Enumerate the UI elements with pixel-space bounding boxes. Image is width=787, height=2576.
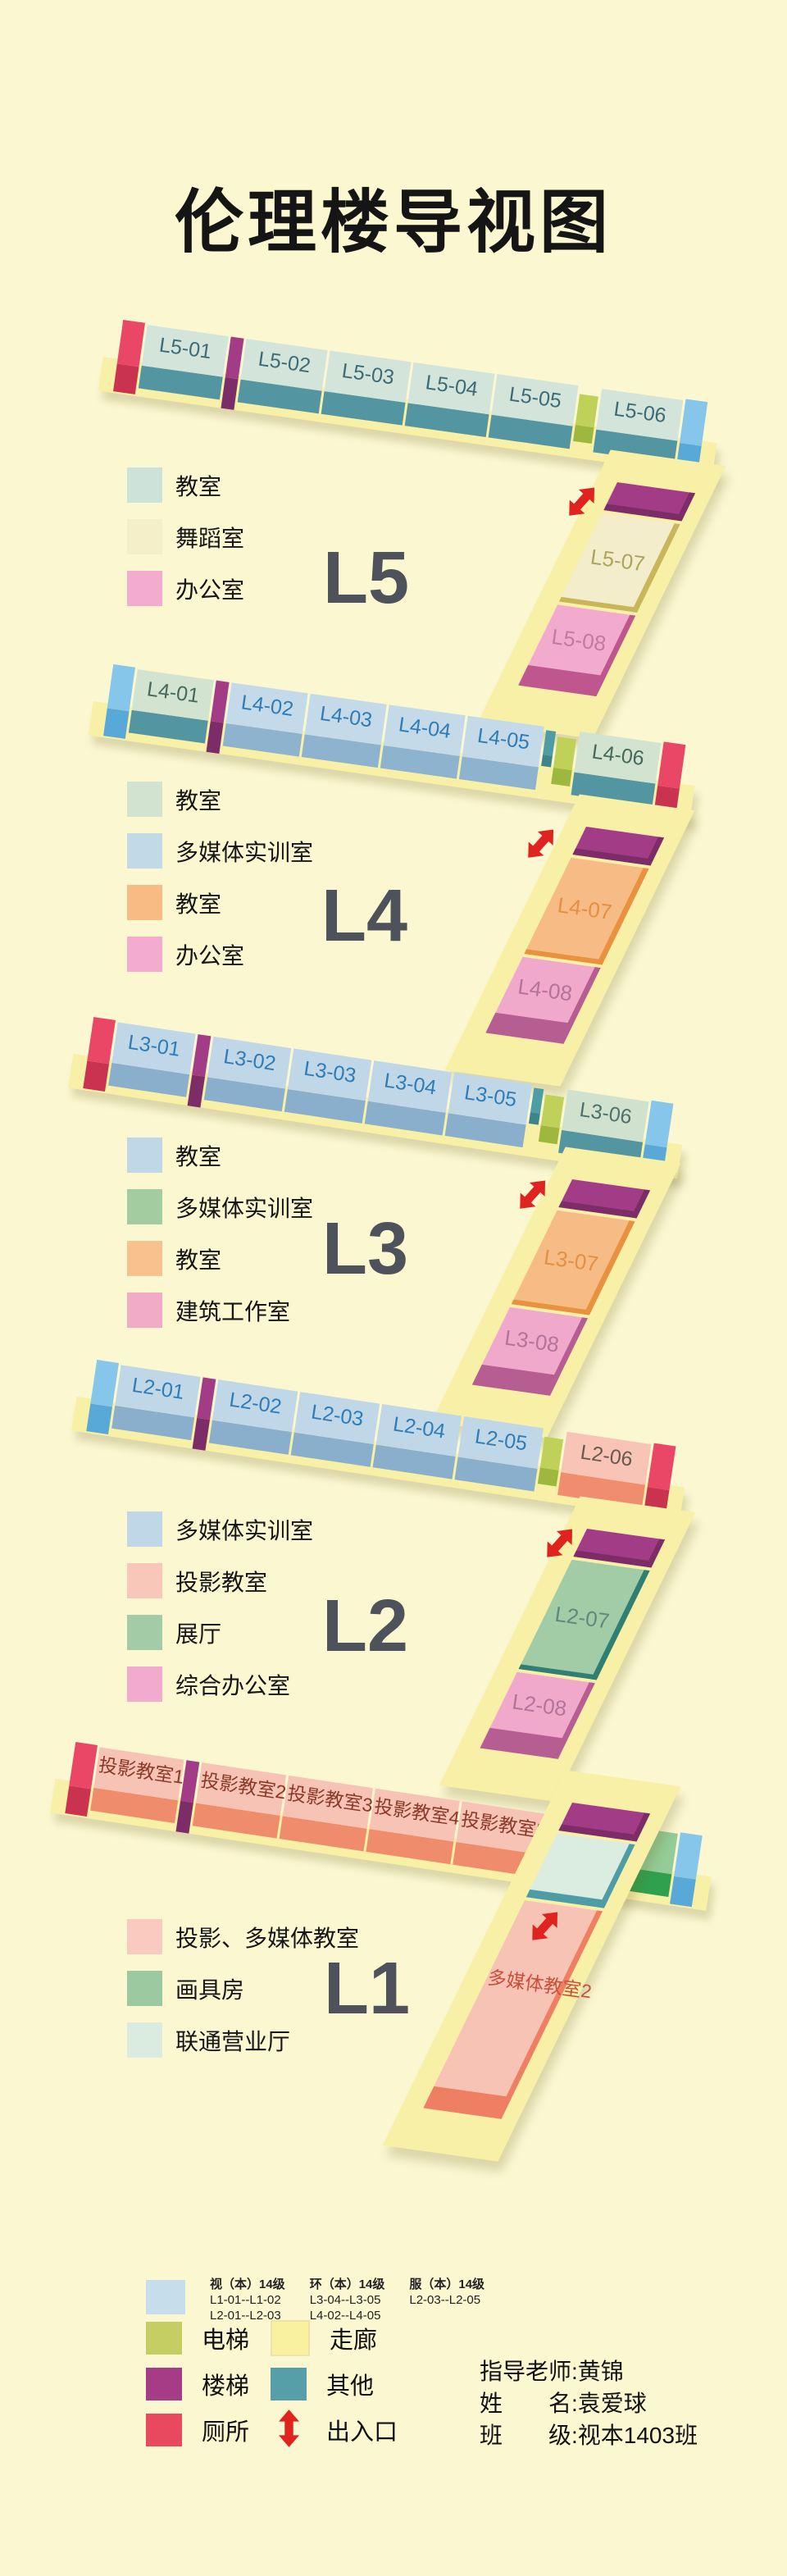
room-label: L3-04 <box>370 1067 451 1102</box>
room-投影教室4: 投影教室4 <box>366 1789 459 1865</box>
entrance-icon <box>271 2410 307 2451</box>
room-L5-02: L5-02 <box>238 339 328 413</box>
credit-teacher: 指导老师:黄锦 <box>480 2355 698 2387</box>
room-label: L2-06 <box>562 1438 650 1475</box>
room-L4-02: L4-02 <box>223 682 308 756</box>
floor-label-L4: L4 <box>321 879 407 953</box>
legend-label: 投影、多媒体教室 <box>175 1921 359 1954</box>
room-label: L3-08 <box>494 1324 570 1359</box>
room-label: L2-04 <box>378 1411 461 1446</box>
room-label: L3-03 <box>289 1055 371 1090</box>
credit-name: 姓 名:袁爱球 <box>480 2387 698 2419</box>
room-label: L5-08 <box>541 622 616 658</box>
floor-L3-branch: L3-07L3-08 <box>471 1179 650 1399</box>
legend-item: 建筑工作室 <box>127 1293 313 1328</box>
legend-swatch <box>127 885 162 920</box>
legend-item: 教室 <box>127 885 313 920</box>
floor-L5-legend: 教室舞蹈室办公室 <box>127 467 244 622</box>
room-投影教室2: 投影教室2 <box>193 1762 286 1839</box>
class-legend-swatch <box>146 2280 185 2314</box>
legend-label: 画具房 <box>175 1972 244 2005</box>
class-group: 环（本）14级L3-04--L3-05L4-02--L4-05 <box>310 2277 385 2323</box>
room-label: L2-01 <box>116 1371 199 1407</box>
legend-swatch <box>127 467 162 503</box>
footer-legend-item: 走廊 <box>271 2320 377 2356</box>
room-label: L3-01 <box>113 1028 194 1064</box>
legend-swatch <box>127 2022 162 2058</box>
room-label: L3-02 <box>209 1043 290 1078</box>
legend-item: 多媒体实训室 <box>127 1189 313 1224</box>
floor-label-L5: L5 <box>323 541 409 615</box>
legend-swatch <box>127 1615 162 1650</box>
legend-swatch <box>127 1971 162 2006</box>
floor-label-L3: L3 <box>322 1212 408 1286</box>
footer-legend-swatch <box>271 2320 310 2356</box>
room-label: L5-04 <box>409 369 494 404</box>
floor-label-L2: L2 <box>322 1589 408 1663</box>
room-L2-04: L2-04 <box>373 1404 462 1479</box>
legend-label: 教室 <box>175 1242 221 1275</box>
room-L3-03: L3-03 <box>284 1049 371 1124</box>
floor-L2-wing: L2-01L2-02L2-03L2-04L2-05L2-06 <box>86 1361 676 1520</box>
room-label: L4-06 <box>575 738 660 773</box>
legend-item: 教室 <box>127 467 244 503</box>
room-L2-02: L2-02 <box>209 1379 298 1455</box>
legend-item: 舞蹈室 <box>127 519 244 554</box>
legend-item: 展厅 <box>127 1615 313 1650</box>
legend-swatch <box>127 1189 162 1224</box>
legend-label: 舞蹈室 <box>175 521 244 554</box>
floor-L3-legend: 教室多媒体实训室教室建筑工作室 <box>127 1138 313 1344</box>
legend-label: 教室 <box>175 1139 221 1172</box>
legend-label: 建筑工作室 <box>175 1294 290 1327</box>
room-label: L3-07 <box>534 1242 609 1278</box>
room-L3-01: L3-01 <box>108 1022 195 1097</box>
class-group-header: 视（本）14级 <box>210 2277 285 2292</box>
class-group-line: L1-01--L1-02 <box>210 2292 285 2308</box>
class-group-header: 服（本）14级 <box>409 2277 484 2292</box>
room-L5-03: L5-03 <box>321 350 412 425</box>
room-label: L2-02 <box>214 1386 297 1421</box>
legend-item: 联通营业厅 <box>127 2022 359 2058</box>
room-label: 投影教室2 <box>198 1764 288 1804</box>
room-label: L4-02 <box>227 689 307 723</box>
legend-label: 办公室 <box>175 938 244 971</box>
room-label: L5-01 <box>143 331 228 367</box>
room-label: L2-05 <box>460 1423 543 1458</box>
footer-legend-swatch <box>146 2322 182 2355</box>
room-label: L4-05 <box>464 723 544 757</box>
room-投影教室1: 投影教室1 <box>90 1747 184 1823</box>
legend-label: 办公室 <box>175 572 244 605</box>
room-label: L5-05 <box>493 381 577 416</box>
room-L5-06: L5-06 <box>593 389 683 463</box>
room-L2-01: L2-01 <box>111 1365 200 1440</box>
floor-L2-legend: 多媒体实训室投影教室展厅综合办公室 <box>127 1511 313 1718</box>
footer-legend-label: 出入口 <box>326 2413 398 2447</box>
room-label: L4-08 <box>507 973 583 1008</box>
room-L4-05: L4-05 <box>459 716 544 790</box>
legend-label: 多媒体实训室 <box>175 1191 313 1224</box>
legend-label: 联通营业厅 <box>175 2024 290 2057</box>
legend-item: 教室 <box>127 1138 313 1173</box>
legend-item: 多媒体实训室 <box>127 1511 313 1547</box>
legend-item: 办公室 <box>127 571 244 606</box>
room-L2-05: L2-05 <box>454 1416 543 1492</box>
credits: 指导老师:黄锦 姓 名:袁爱球 班 级:视本1403班 <box>480 2355 698 2451</box>
legend-swatch <box>127 571 162 606</box>
room-label: L4-01 <box>134 676 213 710</box>
footer-legend-item: 其他 <box>271 2366 374 2402</box>
room-L2-03: L2-03 <box>291 1392 380 1467</box>
legend-swatch <box>127 519 162 554</box>
legend-swatch <box>127 1919 162 1954</box>
legend-item: 办公室 <box>127 937 313 972</box>
room-L3-02: L3-02 <box>204 1037 291 1111</box>
footer-legend-label: 其他 <box>326 2367 374 2401</box>
room-投影教室3: 投影教室3 <box>280 1776 373 1852</box>
footer-legend-item: 电梯 <box>146 2320 249 2356</box>
legend-item: 多媒体实训室 <box>127 833 313 869</box>
room-label: L5-02 <box>242 345 326 381</box>
room-L3-05: L3-05 <box>445 1073 532 1147</box>
room-label: L4-04 <box>385 711 465 745</box>
footer-legend-swatch <box>146 2368 182 2400</box>
legend-item: 教室 <box>127 782 313 817</box>
room-label: 投影教室1 <box>95 1748 185 1789</box>
legend-item: 综合办公室 <box>127 1666 313 1702</box>
footer-legend-item: 出入口 <box>271 2412 398 2448</box>
legend-label: 多媒体实训室 <box>175 835 313 868</box>
room-L5-01: L5-01 <box>139 325 229 399</box>
footer-legend-swatch <box>271 2368 307 2400</box>
class-group: 视（本）14级L1-01--L1-02L2-01--L2-03 <box>210 2277 285 2323</box>
legend-swatch <box>127 782 162 817</box>
legend-swatch <box>127 937 162 972</box>
room-label: L2-07 <box>544 1600 620 1635</box>
credit-class: 班 级:视本1403班 <box>480 2419 698 2451</box>
legend-swatch <box>127 1138 162 1173</box>
footer-legend-item: 楼梯 <box>146 2366 249 2402</box>
class-group-line: L2-03--L2-05 <box>409 2292 484 2308</box>
legend-item: 教室 <box>127 1241 313 1276</box>
room-label: L5-06 <box>598 395 682 431</box>
legend-swatch <box>127 1241 162 1276</box>
footer-legend-label: 走廊 <box>330 2321 377 2355</box>
room-L4-03: L4-03 <box>302 694 387 768</box>
page-title: 伦理楼导视图 <box>0 167 787 267</box>
legend-label: 教室 <box>175 469 221 502</box>
room-L4-04: L4-04 <box>380 704 466 778</box>
legend-label: 教室 <box>175 887 221 919</box>
floor-L4-branch: L4-07L4-08 <box>484 827 665 1047</box>
legend-swatch <box>127 1511 162 1547</box>
floor-L1-legend: 投影、多媒体教室画具房联通营业厅 <box>127 1919 359 2074</box>
room-label: L5-07 <box>580 543 655 578</box>
room-label: L4-03 <box>306 700 385 735</box>
room-label: L3-06 <box>563 1096 648 1131</box>
room-label: 多媒体教室2 <box>486 1962 562 1999</box>
room-L3-04: L3-04 <box>365 1060 452 1135</box>
room-L5-05: L5-05 <box>489 374 579 449</box>
floor-L4-legend: 教室多媒体实训室教室办公室 <box>127 782 313 988</box>
room-L5-04: L5-04 <box>405 362 495 437</box>
class-group-line: L3-04--L3-05 <box>310 2292 385 2308</box>
room-label: L2-08 <box>502 1688 577 1723</box>
footer-legend-label: 电梯 <box>202 2321 249 2355</box>
legend-swatch <box>127 1293 162 1328</box>
legend-label: 教室 <box>175 783 221 816</box>
floor-L2-branch: L2-07L2-08 <box>479 1529 665 1762</box>
floor-L5-branch: L5-07L5-08 <box>516 482 695 700</box>
legend-label: 投影教室 <box>175 1565 267 1598</box>
room-label: L5-03 <box>325 357 410 392</box>
room-label: L4-07 <box>547 891 622 927</box>
class-legend: 视（本）14级L1-01--L1-02L2-01--L2-03环（本）14级L3… <box>146 2277 484 2323</box>
room-L4-01: L4-01 <box>129 669 214 743</box>
legend-swatch <box>127 1666 162 1702</box>
room-label: L2-03 <box>296 1398 379 1434</box>
footer-legend-label: 楼梯 <box>202 2367 249 2401</box>
legend-swatch <box>127 833 162 869</box>
room-label: 投影教室3 <box>284 1777 375 1817</box>
legend-item: 投影、多媒体教室 <box>127 1919 359 1954</box>
room-L2-06: L2-06 <box>557 1432 651 1508</box>
footer-legend-label: 厕所 <box>202 2413 249 2447</box>
legend-item: 画具房 <box>127 1971 359 2006</box>
footer-legend-item: 厕所 <box>146 2412 249 2448</box>
class-group-header: 环（本）14级 <box>310 2277 385 2292</box>
room-label: L3-05 <box>450 1079 531 1115</box>
room-label: 投影教室4 <box>371 1790 462 1831</box>
legend-label: 综合办公室 <box>175 1668 290 1701</box>
legend-item: 投影教室 <box>127 1563 313 1598</box>
footer-legend-swatch <box>146 2414 182 2446</box>
legend-swatch <box>127 1563 162 1598</box>
legend-label: 展厅 <box>175 1616 221 1649</box>
legend-label: 多媒体实训室 <box>175 1513 313 1546</box>
class-group: 服（本）14级L2-03--L2-05 <box>409 2277 484 2323</box>
